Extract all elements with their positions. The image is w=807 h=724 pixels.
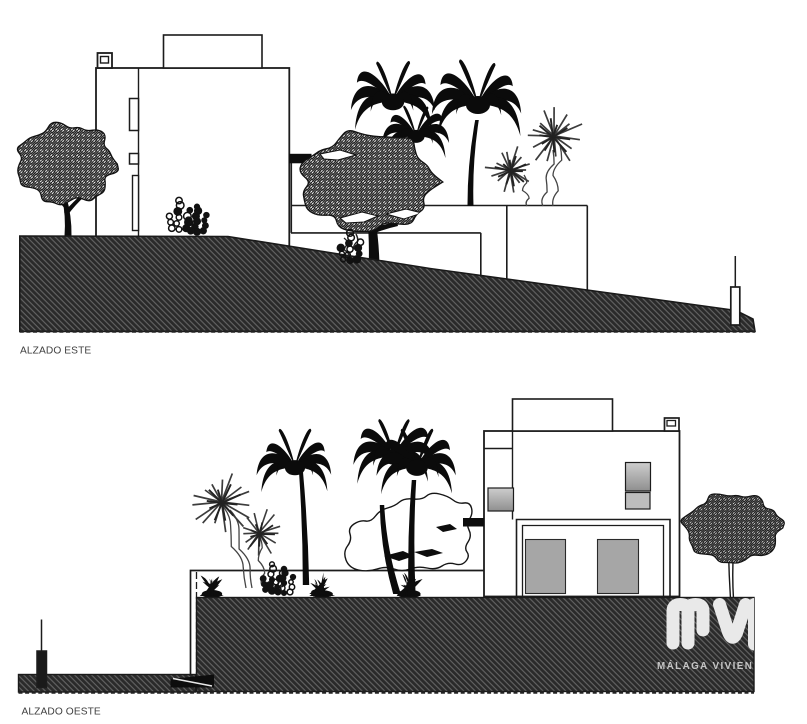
svg-text:ALZADO OESTE: ALZADO OESTE [22, 707, 101, 718]
svg-text:MÁLAGA VIVIENDA: MÁLAGA VIVIENDA [657, 660, 770, 672]
svg-text:ALZADO ESTE: ALZADO ESTE [20, 346, 91, 357]
